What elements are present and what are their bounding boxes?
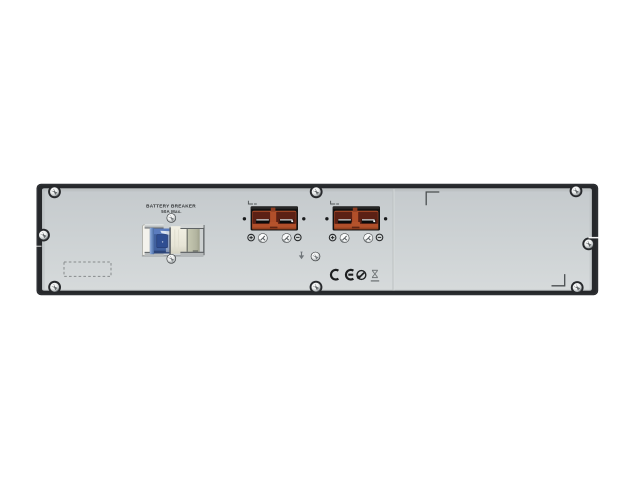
svg-text:50A Max.: 50A Max. [161,209,181,214]
svg-text:BATTERY BREAKER: BATTERY BREAKER [146,203,196,208]
